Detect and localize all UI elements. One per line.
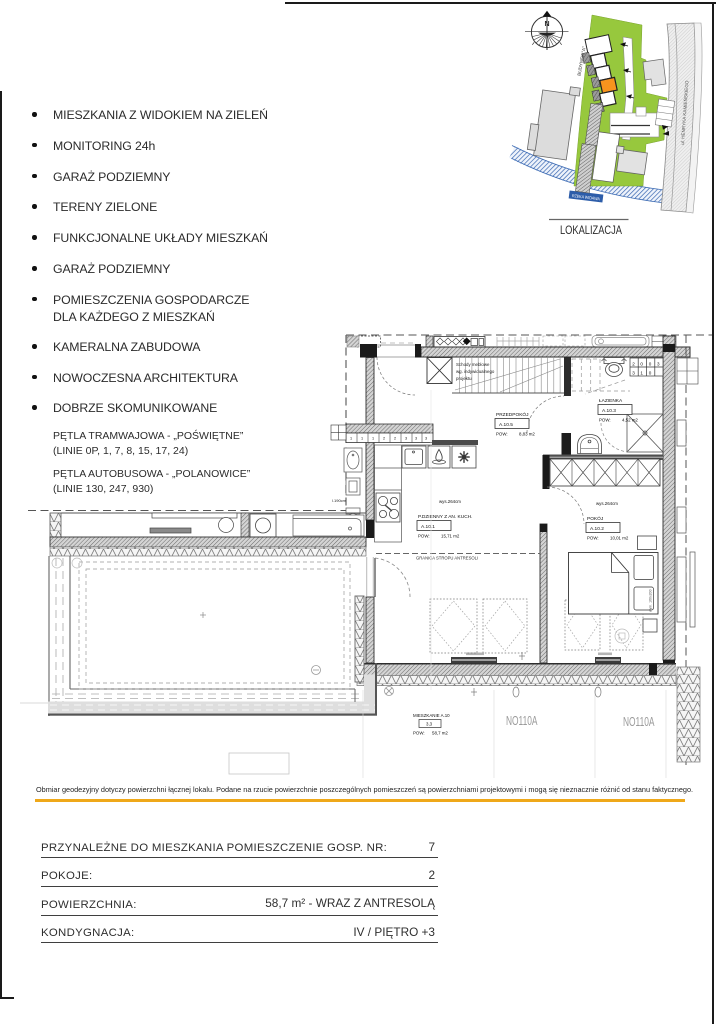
svg-text:wg. indywidualnego: wg. indywidualnego xyxy=(456,369,495,374)
svg-text:wym. 160x200: wym. 160x200 xyxy=(649,589,653,612)
svg-text:projektu: projektu xyxy=(456,376,472,381)
svg-text:0: 0 xyxy=(649,361,652,366)
svg-text:A.10.2: A.10.2 xyxy=(590,526,604,532)
svg-text:3: 3 xyxy=(405,437,407,441)
svg-text:Schody meblowe: Schody meblowe xyxy=(456,362,490,367)
svg-text:POW:: POW: xyxy=(599,418,611,423)
svg-text:A.10.5: A.10.5 xyxy=(499,422,513,428)
svg-text:l.190cm: l.190cm xyxy=(332,498,347,503)
svg-text:1: 1 xyxy=(372,437,374,441)
svg-text:2: 2 xyxy=(394,437,396,441)
svg-text:GRANICA STROPU ANTRESOLI: GRANICA STROPU ANTRESOLI xyxy=(416,556,478,561)
svg-text:NO110A: NO110A xyxy=(623,714,655,729)
svg-text:POW:: POW: xyxy=(587,536,599,541)
svg-text:PRZEDPOKÓJ: PRZEDPOKÓJ xyxy=(496,411,529,418)
svg-text:3: 3 xyxy=(632,370,635,375)
svg-text:N: N xyxy=(544,21,549,28)
svg-text:3: 3 xyxy=(415,437,417,441)
svg-text:NO110A: NO110A xyxy=(506,713,538,728)
svg-text:MIESZKANIE A.10: MIESZKANIE A.10 xyxy=(413,713,450,718)
svg-text:58,7 m2: 58,7 m2 xyxy=(432,731,448,736)
svg-text:8,83 m2: 8,83 m2 xyxy=(519,432,535,437)
svg-text:0: 0 xyxy=(649,370,652,375)
svg-text:LOKALIZACJA: LOKALIZACJA xyxy=(560,225,622,237)
svg-text:A.10.1: A.10.1 xyxy=(421,524,435,530)
svg-text:1: 1 xyxy=(640,370,643,375)
svg-text:1: 1 xyxy=(350,437,352,441)
svg-text:2: 2 xyxy=(383,437,385,441)
svg-text:POKÓJ: POKÓJ xyxy=(587,515,604,522)
svg-text:P.DZIENNY Z AN. KUCH.: P.DZIENNY Z AN. KUCH. xyxy=(418,514,472,520)
svg-text:ŁAZIENKA: ŁAZIENKA xyxy=(599,398,623,404)
svg-text:15,71 m2: 15,71 m2 xyxy=(441,534,460,539)
svg-text:2: 2 xyxy=(632,361,635,366)
svg-text:1: 1 xyxy=(361,437,363,441)
svg-text:4,52 m2: 4,52 m2 xyxy=(622,418,638,423)
svg-text:3: 3 xyxy=(657,361,660,366)
svg-text:3,3: 3,3 xyxy=(426,722,433,727)
svg-text:0: 0 xyxy=(640,361,643,366)
svg-text:POW:: POW: xyxy=(413,731,425,736)
svg-text:10,01 m2: 10,01 m2 xyxy=(610,536,629,541)
svg-text:wys.264cm: wys.264cm xyxy=(439,499,461,504)
svg-text:POW:: POW: xyxy=(496,432,508,437)
svg-text:wys.264cm: wys.264cm xyxy=(596,501,618,506)
svg-text:A.10.3: A.10.3 xyxy=(602,408,616,414)
svg-text:POW:: POW: xyxy=(418,534,430,539)
svg-text:3: 3 xyxy=(425,437,427,441)
